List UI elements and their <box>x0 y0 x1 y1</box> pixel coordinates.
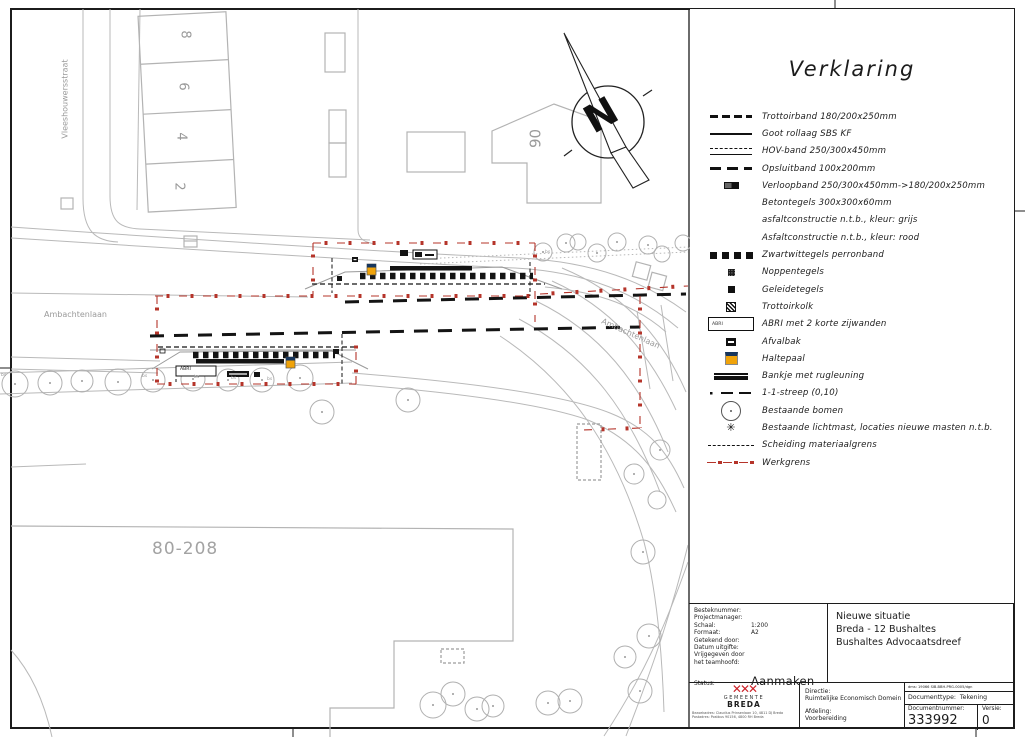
directie-value: Ruimtelijke Economisch Domein <box>805 695 904 702</box>
legend-item-label: Trottoirkolk <box>762 302 813 312</box>
legend-item-label: Bestaande lichtmast, locaties nieuwe mas… <box>762 423 993 433</box>
versie-label: Versie: <box>982 706 1015 713</box>
documenttype-cell: Documenttype: Tekening <box>905 692 1015 705</box>
legend-item: Geleidetegels <box>700 281 1010 298</box>
bench-north <box>400 250 408 256</box>
legend-item: Opsluitband 100x200mm <box>700 160 1010 177</box>
legend-item-label: Bankje met rugleuning <box>762 371 864 381</box>
legend-item: Afvalbak <box>700 333 1010 350</box>
dms-reference: dms: 19066 SIB-BBH-PRG-0005/dgn <box>905 683 1015 692</box>
legend-title: Verklaring <box>690 57 1014 81</box>
drawing-title-line: Breda - 12 Bushaltes <box>836 623 1015 636</box>
kolk-symbol <box>726 302 736 312</box>
verloopband-symbol <box>725 183 738 188</box>
title-block-field: Besteknummer: <box>694 608 827 615</box>
documentnummer-value: 333992 <box>908 713 977 728</box>
parcel-number: 2 <box>173 182 186 190</box>
bs-label: bs <box>1 374 6 379</box>
legend-item-label: Scheiding materiaalgrens <box>762 440 877 450</box>
bs-label: bs <box>231 377 236 382</box>
bs-label: bs <box>545 251 550 256</box>
drawing-title-line: Nieuwe situatie <box>836 610 1015 623</box>
legend-item-label: Afvalbak <box>762 337 801 347</box>
werkgrens-symbol <box>707 460 755 466</box>
haltepaal-symbol <box>725 352 738 365</box>
materiaalgrens-symbol <box>708 445 754 446</box>
gully-north <box>337 276 342 281</box>
bs-label: bs <box>142 375 147 380</box>
house-number-90: 90 <box>529 124 544 154</box>
boom-symbol <box>721 401 741 421</box>
versie-value: 0 <box>982 713 1015 728</box>
legend-item-label: Zwartwittegels perronband <box>762 250 884 260</box>
title-block-field: Vrijgegeven door <box>694 652 827 659</box>
bs-label: bs <box>194 376 199 381</box>
documenttype-label: Documenttype: <box>908 694 956 701</box>
legend-item-label: Noppentegels <box>762 267 824 277</box>
legend-item-label: ABRI met 2 korte zijwanden <box>762 319 887 329</box>
parcel-number: 6 <box>177 82 190 90</box>
legend-item-label: 1-1-streep (0,10) <box>762 388 839 398</box>
parcel-number: 8 <box>179 30 192 38</box>
parcel-block <box>138 12 236 212</box>
legend-item: Asfaltconstructie n.t.b., kleur: rood <box>700 229 1010 246</box>
legend-panel: Verklaring Trottoirband 180/200x250mmGoo… <box>690 9 1014 603</box>
street-label-ambachtenlaan-left: Ambachtenlaan <box>44 311 107 319</box>
legend-item: Haltepaal <box>700 350 1010 367</box>
legend-item: Trottoirkolk <box>700 298 1010 315</box>
streep-symbol <box>708 392 754 395</box>
zwartwit-symbol <box>710 252 753 259</box>
documenttype-value: Tekening <box>960 694 987 701</box>
legend-item: Noppentegels <box>700 264 1010 281</box>
title-block-fields: Besteknummer:Projectmanager:Schaal:1:200… <box>689 604 828 682</box>
legend-item: Bankje met rugleuning <box>700 367 1010 384</box>
title-block-field: Formaat:A2 <box>694 630 827 637</box>
geleide-symbol <box>728 286 735 293</box>
legend-item-label: Trottoirband 180/200x250mm <box>762 112 897 122</box>
legend-item-label: Opsluitband 100x200mm <box>762 164 875 174</box>
afdeling-value: Voorbereiding <box>805 715 904 722</box>
org-name-bottom: BREDA <box>689 701 799 709</box>
south-bus-platform <box>150 327 640 384</box>
lichtmast-symbol: ✳ <box>726 422 735 433</box>
gemeente-breda-logo: ✕✕✕ GEMEENTE BREDA Bezoekadres: Claudius… <box>689 683 800 729</box>
legend-item-label: asfaltconstructie n.t.b., kleur: grijs <box>762 215 918 225</box>
street-label-vleeshouwersstraat: Vleeshouwersstraat <box>62 52 70 147</box>
noppen-symbol <box>728 269 735 276</box>
legend-item-label: Werkgrens <box>762 458 810 468</box>
drawing-title: Nieuwe situatie Breda - 12 Bushaltes Bus… <box>828 604 1015 682</box>
abri-symbol: ABRI <box>708 317 754 331</box>
legend-item: Zwartwittegels perronband <box>700 246 1010 263</box>
legend-item: Werkgrens <box>700 454 1010 471</box>
legend-item-label: Bestaande bomen <box>762 406 843 416</box>
documentnummer-label: Documentnummer: <box>908 706 977 713</box>
legend-item-label: Geleidetegels <box>762 285 824 295</box>
waste-bin-south <box>254 372 260 377</box>
bankje-symbol <box>714 373 748 380</box>
org-address: Bezoekadres: Claudius Prinsenlaan 10, 48… <box>689 711 799 719</box>
title-block-field: Datum uitgifte: <box>694 645 827 652</box>
opsluitband-symbol <box>710 167 752 170</box>
legend-item: Goot rollaag SBS KF <box>700 125 1010 142</box>
title-block-field: Projectmanager: <box>694 615 827 622</box>
legend-item: 1-1-streep (0,10) <box>700 385 1010 402</box>
legend-item: ABRIABRI met 2 korte zijwanden <box>700 316 1010 333</box>
legend-item-label: Verloopband 250/300x450mm->180/200x250mm <box>762 181 985 191</box>
block-number-80-208: 80-208 <box>152 541 218 558</box>
title-block: Besteknummer:Projectmanager:Schaal:1:200… <box>689 603 1015 729</box>
legend-item: ✳Bestaande lichtmast, locaties nieuwe ma… <box>700 419 1010 436</box>
parcel-number: 4 <box>175 132 188 140</box>
afvalbak-symbol <box>726 338 736 346</box>
org-address-line: Postadres: Postbus 90156, 4800 RH Breda <box>692 715 799 719</box>
title-block-field: het teamhoofd: <box>694 660 827 667</box>
breda-crosses-icon: ✕✕✕ <box>689 684 799 695</box>
goot-symbol <box>710 133 752 135</box>
legend-item: asfaltconstructie n.t.b., kleur: grijs <box>700 212 1010 229</box>
title-block-field: Schaal:1:200 <box>694 623 827 630</box>
legend-item-label: Haltepaal <box>762 354 805 364</box>
abri-map-label: ABRI <box>180 368 191 373</box>
drawing-sheet: Vleeshouwersstraat Ambachtenlaan Ambacht… <box>0 0 1025 737</box>
trottoirband-symbol <box>710 115 752 118</box>
north-bus-platform <box>305 250 686 302</box>
legend-item: Scheiding materiaalgrens <box>700 437 1010 454</box>
legend-item-label: Asfaltconstructie n.t.b., kleur: rood <box>762 233 919 243</box>
legend-item: Verloopband 250/300x450mm->180/200x250mm <box>700 177 1010 194</box>
drawing-title-line: Bushaltes Advocaatsdreef <box>836 636 1015 649</box>
legend-item: Trottoirband 180/200x250mm <box>700 108 1010 125</box>
work-boundary <box>155 243 688 430</box>
afdeling-label: Afdeling: <box>805 708 904 715</box>
title-block-field: Getekend door: <box>694 638 827 645</box>
versie-cell: Versie: 0 <box>978 705 1015 730</box>
hov-symbol <box>710 148 752 155</box>
directie-cell: Directie: Ruimtelijke Economisch Domein … <box>800 683 905 729</box>
legend-item-label: Goot rollaag SBS KF <box>762 129 851 139</box>
directie-label: Directie: <box>805 688 904 695</box>
legend-item: Bestaande bomen <box>700 402 1010 419</box>
legend-item-label: HOV-band 250/300x450mm <box>762 146 886 156</box>
documentnummer-cell: Documentnummer: 333992 <box>905 705 978 730</box>
legend-item: Betontegels 300x300x60mm <box>700 194 1010 211</box>
legend-item: HOV-band 250/300x450mm <box>700 143 1010 160</box>
gully-south <box>333 349 339 354</box>
bs-label: bs <box>267 378 272 383</box>
legend-item-label: Betontegels 300x300x60mm <box>762 198 892 208</box>
legend-items: Trottoirband 180/200x250mmGoot rollaag S… <box>700 108 1010 471</box>
existing-trees <box>2 233 691 721</box>
